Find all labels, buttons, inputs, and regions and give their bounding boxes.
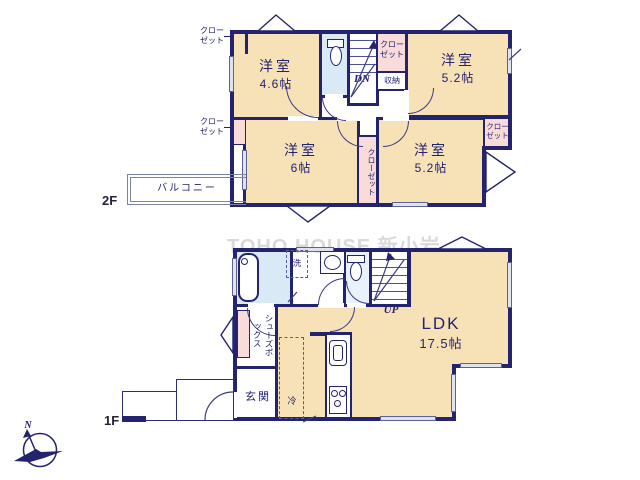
closet-label: クローゼット <box>197 26 227 46</box>
closet-2f-left-slot <box>232 119 246 145</box>
room-size: 17.5帖 <box>405 336 477 352</box>
room-label: 洋室 6帖 <box>251 142 351 175</box>
ldk-label: LDK 17.5帖 <box>405 314 477 352</box>
wall <box>233 366 278 369</box>
entrance-label: 玄関 <box>238 391 278 404</box>
wall <box>369 250 372 306</box>
closet-label: クローゼット <box>378 40 406 60</box>
window <box>507 262 512 308</box>
toilet-bowl-icon <box>350 262 362 281</box>
storage-label: 収納 <box>377 76 407 86</box>
label-tick <box>224 36 232 37</box>
bathtub-drain-icon <box>241 258 248 265</box>
wall <box>407 248 411 306</box>
window <box>451 374 456 412</box>
floor-plan: TOHO HOUSE 新小岩 バルコニー 2F 洋室 4.6帖 <box>0 0 640 480</box>
compass-north-label: N <box>21 420 35 431</box>
fridge-label: 冷 <box>284 396 300 407</box>
room-size: 5.2帖 <box>412 71 504 85</box>
room-size: 6帖 <box>251 161 351 175</box>
stove-burner-icon <box>334 400 341 407</box>
door-arc <box>318 278 345 305</box>
closet-label: クローゼット <box>197 117 227 137</box>
wall <box>230 30 512 34</box>
porch-step <box>176 379 234 421</box>
wall <box>483 146 512 150</box>
shoe-box-label: シューズボックス <box>252 312 274 358</box>
washbasin-bowl-icon <box>324 255 341 270</box>
stove-burner-icon <box>339 390 346 397</box>
room-size: 4.6帖 <box>234 77 318 91</box>
stove-burner-icon <box>331 390 338 397</box>
closet-label: クローゼット <box>485 122 510 141</box>
room-name: 洋室 <box>383 142 479 159</box>
room-label: 洋室 5.2帖 <box>412 52 504 85</box>
room-size: 5.2帖 <box>383 161 479 175</box>
wall-closet-stub <box>245 32 248 54</box>
label-tick <box>224 127 232 128</box>
wall <box>482 146 486 207</box>
window <box>380 416 436 421</box>
window <box>232 258 237 296</box>
room-name: LDK <box>405 314 477 334</box>
stairs-up-label: UP <box>376 304 406 316</box>
window <box>392 202 428 207</box>
balcony-label: バルコニー <box>147 183 227 195</box>
floor-2f-label: 2F <box>102 193 117 208</box>
room-label: 洋室 4.6帖 <box>234 58 318 91</box>
stair-steps-1f <box>372 252 407 304</box>
wall <box>230 203 486 207</box>
room-label: 洋室 5.2帖 <box>383 142 479 175</box>
closet-label: クローゼット <box>360 141 376 203</box>
stair-steps-2f <box>350 33 376 77</box>
toilet-bowl-icon <box>330 46 342 66</box>
kitchen-sink-basin-icon <box>333 345 343 361</box>
wall <box>122 416 146 422</box>
compass-icon <box>14 429 63 467</box>
window <box>460 363 502 368</box>
stairs-down-label: DN <box>348 73 376 85</box>
room-name: 洋室 <box>412 52 504 69</box>
floor-1f-label: 1F <box>104 413 119 428</box>
room-name: 洋室 <box>234 58 318 75</box>
room-name: 洋室 <box>251 142 351 159</box>
window <box>507 48 512 74</box>
wall <box>233 248 512 252</box>
washer-label: 洗 <box>288 258 306 268</box>
